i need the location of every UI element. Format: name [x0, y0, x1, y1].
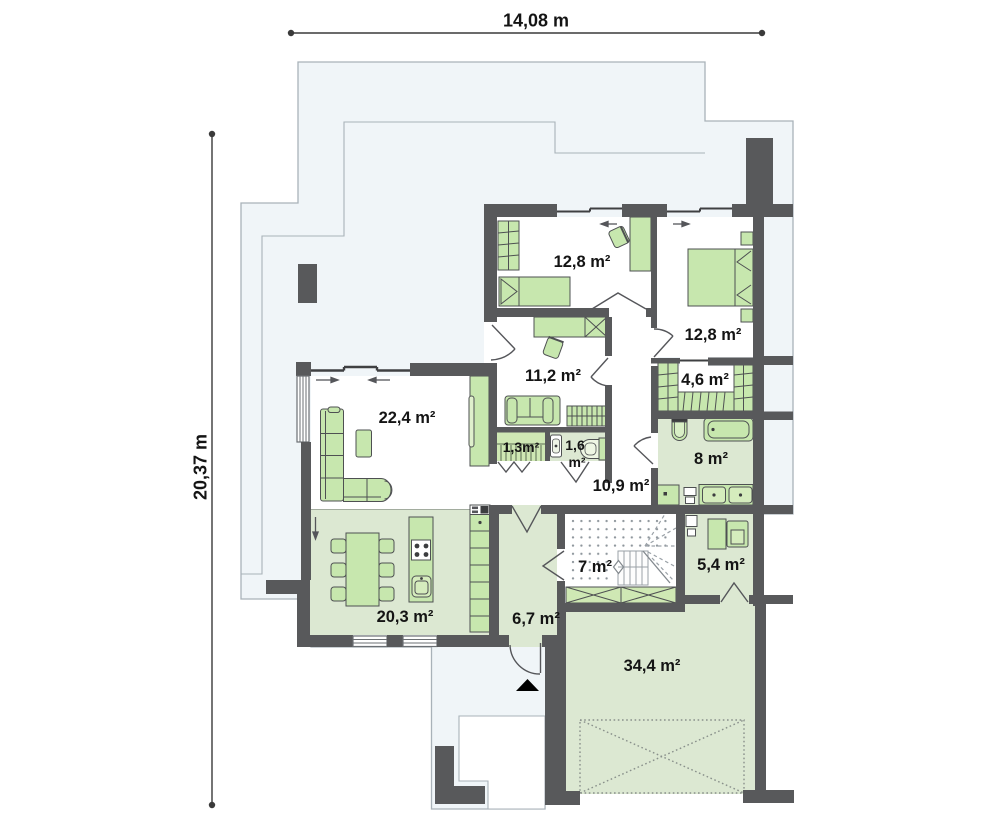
svg-text:20,3 m²: 20,3 m² — [377, 608, 434, 626]
svg-text:34,4 m²: 34,4 m² — [624, 657, 681, 675]
svg-text:6,7 m²: 6,7 m² — [512, 610, 560, 628]
svg-text:12,8 m²: 12,8 m² — [554, 253, 611, 271]
svg-text:7 m²: 7 m² — [578, 558, 612, 576]
svg-text:22,4 m²: 22,4 m² — [379, 409, 436, 427]
svg-text:m²: m² — [568, 454, 585, 470]
svg-text:4,6 m²: 4,6 m² — [681, 371, 729, 389]
svg-text:10,9 m²: 10,9 m² — [593, 477, 650, 495]
svg-text:12,8 m²: 12,8 m² — [685, 326, 742, 344]
svg-text:1,3m²: 1,3m² — [503, 439, 540, 455]
svg-text:11,2 m²: 11,2 m² — [525, 367, 581, 385]
svg-text:20,37 m: 20,37 m — [191, 434, 211, 500]
svg-text:5,4 m²: 5,4 m² — [697, 556, 745, 574]
svg-text:8 m²: 8 m² — [694, 450, 728, 468]
svg-text:1,6: 1,6 — [565, 437, 585, 453]
svg-text:14,08 m: 14,08 m — [503, 11, 569, 31]
